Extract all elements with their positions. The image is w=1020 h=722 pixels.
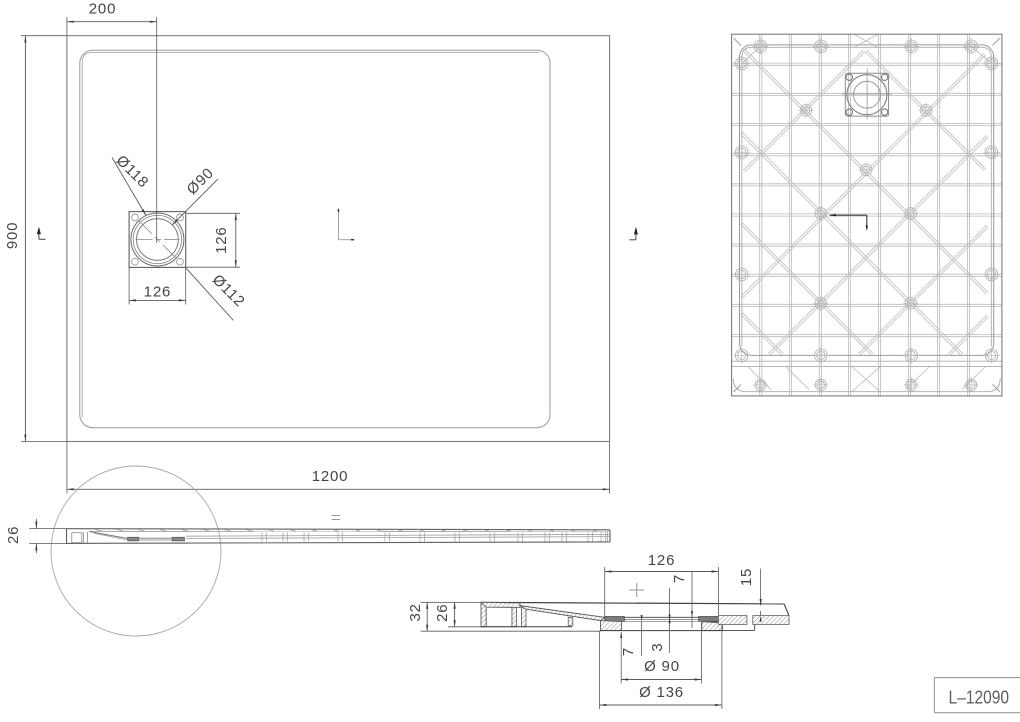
svg-text:26: 26 [434,604,451,622]
svg-text:7: 7 [620,647,637,656]
svg-text:126: 126 [213,226,230,253]
svg-text:200: 200 [89,0,116,17]
svg-text:Ø 136: Ø 136 [639,684,684,701]
svg-text:15: 15 [738,568,755,586]
svg-text:1200: 1200 [312,468,349,485]
svg-text:7: 7 [671,574,688,583]
svg-text:26: 26 [5,526,22,544]
svg-text:126: 126 [648,552,675,569]
svg-text:Ø 90: Ø 90 [644,658,680,675]
svg-text:126: 126 [144,284,171,301]
svg-text:3: 3 [649,642,666,651]
svg-text:900: 900 [4,222,21,249]
svg-text:L–12090: L–12090 [949,687,1009,708]
svg-text:32: 32 [407,603,424,621]
